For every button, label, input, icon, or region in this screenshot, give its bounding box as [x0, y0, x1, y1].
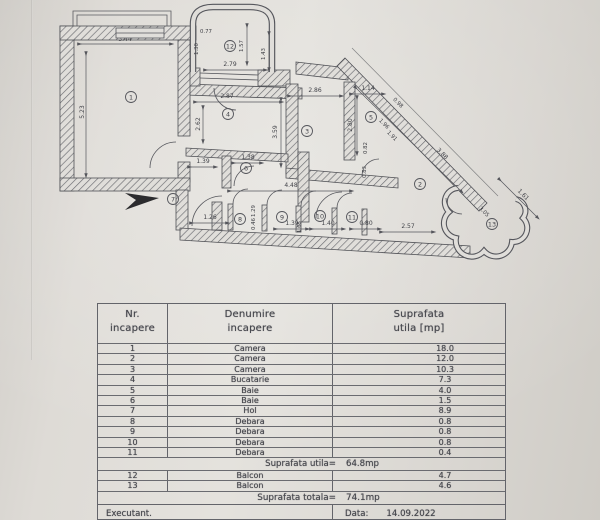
- svg-text:8: 8: [238, 215, 242, 223]
- dim-label: 0.80: [359, 220, 373, 227]
- wall-segment: [262, 205, 267, 231]
- dim-label: 0.77: [200, 29, 212, 35]
- row-name: Camera: [168, 354, 333, 363]
- row-name: Balcon: [168, 471, 333, 480]
- total-value: 74.1mp: [346, 493, 380, 503]
- row-area: 10.3: [333, 365, 505, 374]
- row-area: 12.0: [333, 354, 505, 363]
- date-value: 14.09.2022: [386, 509, 435, 520]
- dim-label: 0.82: [363, 142, 369, 154]
- dim-label: 1.43: [261, 48, 267, 60]
- row-name: Camera: [168, 365, 333, 374]
- table-row: 12Balcon4.7: [98, 470, 505, 480]
- date-label: Data:: [345, 509, 368, 520]
- dim-label: 2.80: [347, 118, 354, 132]
- total-row: Suprafata totala= 74.1mp: [98, 491, 505, 504]
- dim-label: 1.91: [385, 130, 398, 143]
- room-label-2: 2: [415, 179, 426, 190]
- row-area: 4.7: [333, 471, 505, 480]
- wall-segment: [60, 178, 190, 191]
- dim-label: 1.26: [203, 214, 217, 221]
- wall-segment: [258, 70, 290, 86]
- svg-text:10: 10: [316, 212, 324, 220]
- row-name: Debara: [168, 417, 333, 426]
- header-suprafata-line2: utila [mp]: [333, 322, 505, 336]
- table-row: 9Debara0.8: [98, 426, 505, 436]
- svg-text:1: 1: [129, 93, 133, 101]
- dim-label: 0.46: [251, 217, 257, 230]
- header-denumire-line1: Denumire: [168, 308, 332, 322]
- wall-segment: [337, 58, 487, 211]
- door-arc: [150, 142, 176, 168]
- svg-text:6: 6: [244, 164, 248, 172]
- total-label: Suprafata totala=: [98, 493, 336, 503]
- svg-text:4: 4: [226, 110, 230, 118]
- dim-label: 2.62: [195, 117, 202, 131]
- row-nr: 10: [98, 438, 168, 447]
- svg-text:3: 3: [305, 127, 309, 135]
- table-row: 10Debara0.8: [98, 437, 505, 447]
- entrance-arrow: [125, 193, 159, 210]
- table-row: 8Debara0.8: [98, 416, 505, 426]
- header-nr-line2: incapere: [98, 322, 167, 336]
- row-area: 0.4: [333, 448, 505, 457]
- header-denumire-line2: incapere: [168, 322, 332, 336]
- scanned-document: 3.44 5.23 0.77 1.30 1.57 1.43 2.79 2.87 …: [0, 0, 600, 520]
- row-nr: 11: [98, 448, 168, 457]
- row-nr: 3: [98, 365, 168, 374]
- header-nr-line1: Nr.: [98, 308, 167, 322]
- row-name: Baie: [168, 386, 333, 395]
- svg-text:13: 13: [488, 220, 496, 228]
- dimension-line: [500, 180, 538, 218]
- dim-label: 5.23: [79, 105, 86, 119]
- row-area: 4.0: [333, 386, 505, 395]
- room-schedule-table: Nr. incapere Denumire incapere Suprafata…: [97, 303, 506, 520]
- svg-text:2: 2: [418, 180, 422, 188]
- room-label-12: 12: [225, 41, 236, 52]
- header-suprafata-line1: Suprafata: [333, 308, 505, 322]
- wall-segment: [180, 228, 470, 258]
- room-label-9: 9: [277, 212, 288, 223]
- table-row: 3Camera10.3: [98, 364, 505, 374]
- svg-text:5: 5: [369, 113, 373, 121]
- row-name: Hol: [168, 406, 333, 415]
- dim-label: 1.14: [361, 85, 375, 92]
- room-label-3: 3: [302, 126, 313, 137]
- row-name: Debara: [168, 438, 333, 447]
- dim-label: 1.40: [321, 220, 335, 227]
- header-denumire: Denumire incapere: [168, 304, 333, 343]
- row-nr: 8: [98, 417, 168, 426]
- row-nr: 12: [98, 471, 168, 480]
- dim-label: 3.59: [272, 125, 279, 139]
- table-row: 13Balcon4.6: [98, 480, 505, 490]
- wall-segment: [60, 26, 74, 191]
- header-suprafata: Suprafata utila [mp]: [333, 304, 505, 343]
- dim-label: 2.86: [308, 87, 322, 94]
- wall-segment: [228, 204, 233, 230]
- row-name: Baie: [168, 396, 333, 405]
- wall-segment: [178, 40, 190, 136]
- table-row: 11Debara0.4: [98, 447, 505, 457]
- floor-plan: 3.44 5.23 0.77 1.30 1.57 1.43 2.79 2.87 …: [0, 0, 600, 300]
- window: [116, 28, 164, 38]
- svg-text:11: 11: [348, 213, 356, 221]
- dim-label: 3.05: [477, 206, 490, 219]
- row-nr: 6: [98, 396, 168, 405]
- row-area: 8.9: [333, 406, 505, 415]
- row-nr: 7: [98, 406, 168, 415]
- dim-label: 1.39: [285, 220, 299, 227]
- room-label-1: 1: [126, 92, 137, 103]
- table-header: Nr. incapere Denumire incapere Suprafata…: [98, 304, 505, 343]
- row-name: Debara: [168, 448, 333, 457]
- dim-label: 2.87: [220, 93, 234, 100]
- outline-line: [73, 11, 171, 26]
- dim-label: 1.38: [241, 154, 255, 161]
- row-nr: 2: [98, 354, 168, 363]
- row-area: 0.8: [333, 417, 505, 426]
- room-label-10: 10: [315, 211, 326, 222]
- row-area: 1.5: [333, 396, 505, 405]
- row-area: 0.8: [333, 427, 505, 436]
- table-row: 6Baie1.5: [98, 395, 505, 405]
- room-label-8: 8: [235, 214, 246, 225]
- row-nr: 4: [98, 375, 168, 384]
- room-label-4: 4: [223, 109, 234, 120]
- balcony-13-outline: [444, 188, 527, 257]
- row-name: Balcon: [168, 481, 333, 490]
- dim-label: 1.30: [194, 42, 200, 55]
- subtotal-row: Suprafata utila= 64.8mp: [98, 457, 505, 470]
- svg-text:9: 9: [280, 213, 284, 221]
- table-row: 7Hol8.9: [98, 405, 505, 415]
- dim-label: 1.29: [251, 204, 257, 217]
- row-nr: 9: [98, 427, 168, 436]
- table-row: 2Camera12.0: [98, 353, 505, 363]
- table-footer: Executant. Data: 14.09.2022: [98, 504, 505, 520]
- executant-label: Executant.: [98, 505, 332, 520]
- svg-text:7: 7: [171, 195, 175, 203]
- dim-label: 2.79: [223, 61, 237, 68]
- outline-line: [77, 15, 167, 26]
- table-row: 1Camera18.0: [98, 343, 505, 353]
- room-label-13: 13: [487, 219, 498, 230]
- svg-text:12: 12: [226, 42, 234, 50]
- dim-label: 4.48: [284, 182, 298, 189]
- date-cell: Data: 14.09.2022: [332, 505, 505, 520]
- row-nr: 5: [98, 386, 168, 395]
- row-area: 18.0: [333, 344, 505, 353]
- row-name: Bucatarie: [168, 375, 333, 384]
- room-label-6: 6: [241, 163, 252, 174]
- row-nr: 13: [98, 481, 168, 490]
- header-nr: Nr. incapere: [98, 304, 168, 343]
- row-nr: 1: [98, 344, 168, 353]
- subtotal-value: 64.8mp: [346, 459, 379, 469]
- dim-label: 1.39: [196, 158, 210, 165]
- dim-label: 2.57: [401, 223, 415, 230]
- row-name: Debara: [168, 427, 333, 436]
- wall-segment: [222, 156, 231, 188]
- row-name: Camera: [168, 344, 333, 353]
- door-arc: [267, 190, 282, 205]
- dim-label: 0.83: [362, 166, 368, 178]
- dim-label: 1.57: [239, 40, 245, 52]
- row-area: 0.8: [333, 438, 505, 447]
- door-arc: [337, 193, 352, 208]
- room-label-11: 11: [347, 212, 358, 223]
- room-label-5: 5: [366, 112, 377, 123]
- subtotal-label: Suprafata utila=: [98, 459, 336, 469]
- row-area: 7.3: [333, 375, 505, 384]
- row-area: 4.6: [333, 481, 505, 490]
- table-row: 4Bucatarie7.3: [98, 374, 505, 384]
- table-row: 5Baie4.0: [98, 385, 505, 395]
